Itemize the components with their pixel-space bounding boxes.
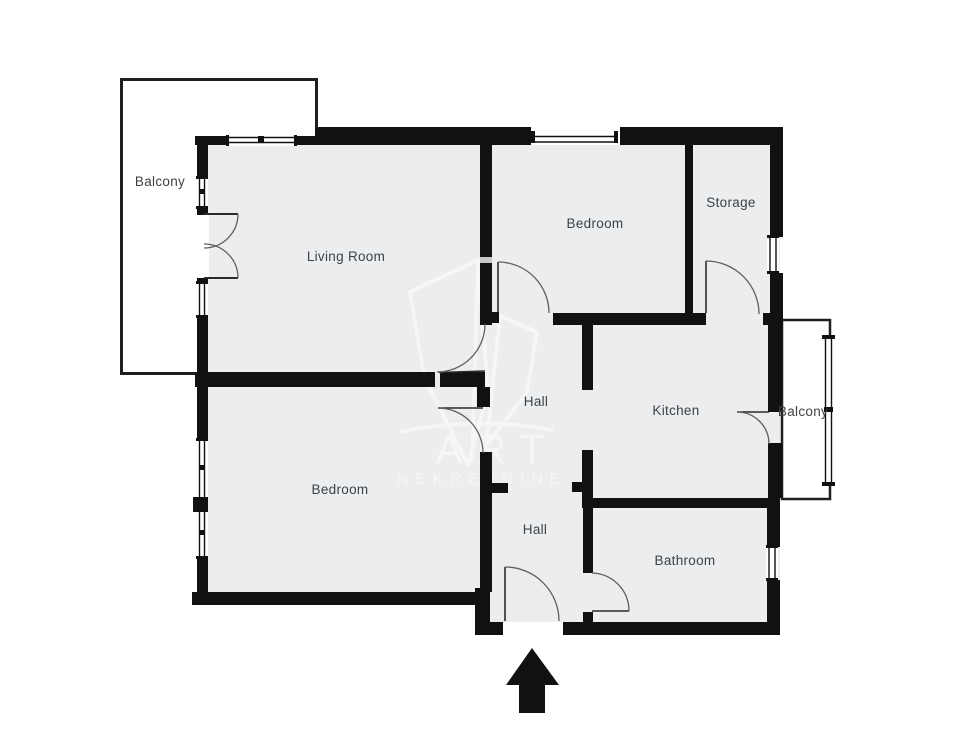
- label-balcony-left: Balcony: [135, 174, 185, 189]
- label-hall-lower: Hall: [523, 522, 547, 537]
- label-bathroom: Bathroom: [655, 553, 716, 568]
- balcony-door-gap: [196, 215, 209, 278]
- window-bedroom-left-2: [196, 512, 208, 559]
- window-bedroom-left-1: [196, 438, 208, 497]
- label-bedroom-bottom: Bedroom: [312, 482, 369, 497]
- window-bedroom-top: [531, 127, 620, 145]
- label-storage: Storage: [706, 195, 755, 210]
- window-living-top: [226, 135, 297, 146]
- floor-plan-svg: ART NEKRETNINE: [0, 0, 954, 750]
- label-bedroom-top: Bedroom: [567, 216, 624, 231]
- window-bathroom-right: [766, 545, 778, 581]
- label-living-room: Living Room: [307, 249, 385, 264]
- window-living-left-2: [196, 281, 208, 318]
- watermark-text-art: ART: [435, 426, 558, 472]
- label-balcony-right: Balcony: [778, 404, 828, 419]
- entrance-arrow: [506, 648, 559, 713]
- wall-notch: [480, 257, 492, 263]
- window-living-left-1: [196, 176, 208, 209]
- entrance-gap: [503, 622, 563, 635]
- label-hall-upper: Hall: [524, 394, 548, 409]
- label-kitchen: Kitchen: [652, 403, 699, 418]
- floor-plan-page: { "title": "Apartment floor plan", "colo…: [0, 0, 954, 750]
- window-storage-right: [767, 235, 779, 274]
